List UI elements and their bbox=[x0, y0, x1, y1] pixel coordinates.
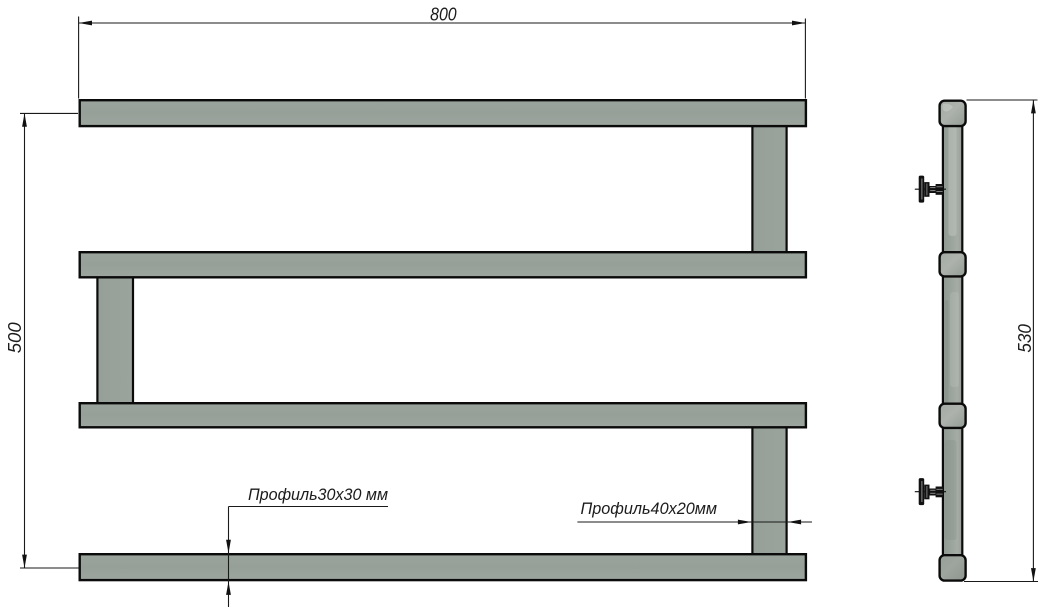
svg-text:Профиль30х30 мм: Профиль30х30 мм bbox=[248, 485, 388, 504]
svg-text:500: 500 bbox=[4, 322, 25, 354]
svg-text:800: 800 bbox=[430, 3, 457, 24]
svg-text:Профиль40х20мм: Профиль40х20мм bbox=[581, 499, 718, 518]
svg-text:530: 530 bbox=[1014, 323, 1035, 352]
